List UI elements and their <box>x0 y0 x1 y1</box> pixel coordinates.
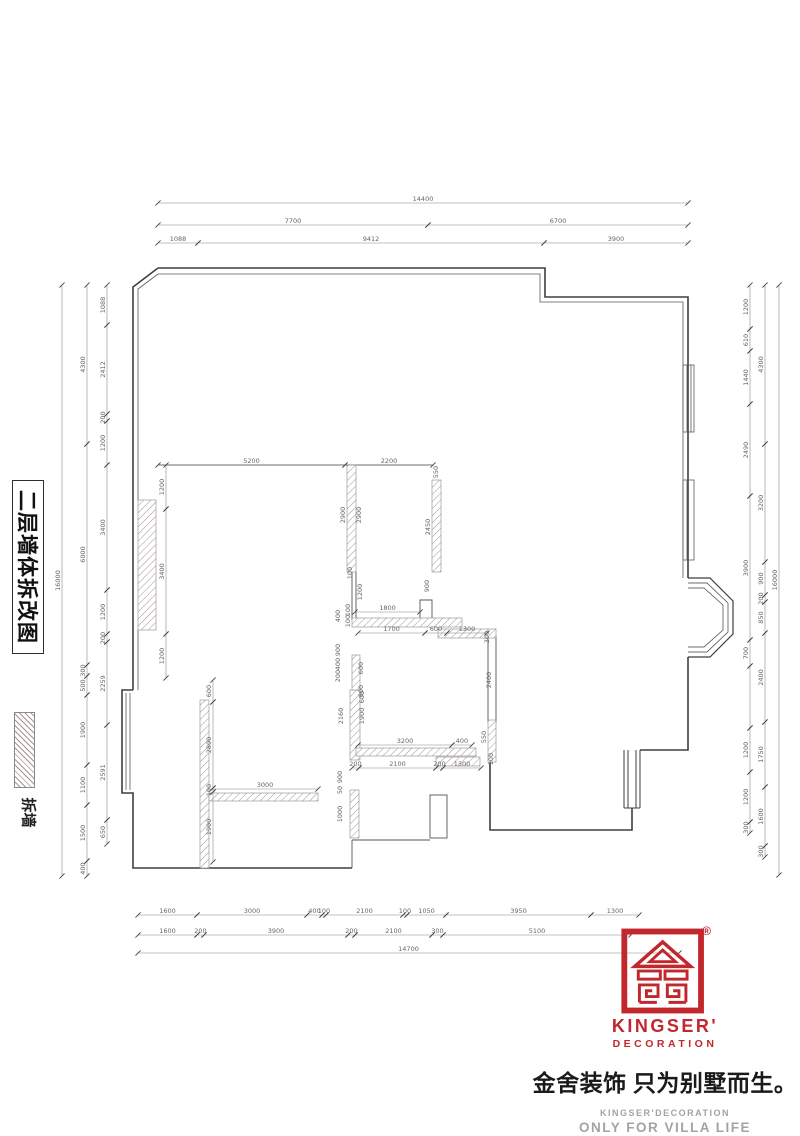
svg-text:900: 900 <box>336 771 344 783</box>
svg-text:1440: 1440 <box>742 369 750 386</box>
svg-text:6700: 6700 <box>550 217 567 225</box>
svg-text:550: 550 <box>480 731 488 743</box>
brand-subname: DECORATION <box>613 1038 718 1050</box>
svg-text:14400: 14400 <box>413 195 434 203</box>
drawing-sheet: 1440077006700108894123900160030004001002… <box>0 0 800 1131</box>
svg-text:600: 600 <box>357 662 365 674</box>
svg-text:550: 550 <box>432 466 440 478</box>
registered-mark: ® <box>702 924 711 938</box>
svg-text:3900: 3900 <box>742 560 750 577</box>
svg-text:400: 400 <box>334 610 342 622</box>
wall-inner-lines <box>126 274 683 790</box>
kingser-logo-mark: ® <box>617 928 713 1014</box>
svg-text:2100: 2100 <box>389 760 406 768</box>
svg-text:2900: 2900 <box>339 507 347 524</box>
svg-text:300: 300 <box>742 821 750 833</box>
svg-text:4300: 4300 <box>757 356 765 373</box>
svg-text:200: 200 <box>99 632 107 644</box>
svg-text:2400: 2400 <box>485 672 493 689</box>
demolish-wall-swatch <box>14 712 35 788</box>
svg-text:2259: 2259 <box>99 675 107 692</box>
svg-text:300: 300 <box>757 845 765 857</box>
svg-text:600: 600 <box>430 625 442 633</box>
svg-text:4300: 4300 <box>79 356 87 373</box>
legend: 拆墙 <box>12 712 46 852</box>
svg-text:2591: 2591 <box>99 764 107 781</box>
svg-text:300: 300 <box>79 664 87 676</box>
drawing-title-box: 二层墙体拆改图 <box>12 480 44 654</box>
svg-text:1750: 1750 <box>757 746 765 763</box>
door-opening-bottom-right <box>624 750 640 808</box>
svg-text:1300: 1300 <box>607 907 624 915</box>
svg-text:1600: 1600 <box>757 808 765 825</box>
svg-text:900: 900 <box>423 580 431 592</box>
svg-text:14700: 14700 <box>398 945 419 953</box>
svg-text:1200: 1200 <box>158 648 166 665</box>
svg-text:1600: 1600 <box>159 927 176 935</box>
svg-text:1088: 1088 <box>170 235 187 243</box>
svg-text:400: 400 <box>79 862 87 874</box>
svg-text:1200: 1200 <box>742 742 750 759</box>
svg-text:50: 50 <box>336 786 344 794</box>
bay-window-right <box>688 578 733 657</box>
svg-text:1300: 1300 <box>459 625 476 633</box>
svg-text:400: 400 <box>456 737 468 745</box>
svg-text:2800: 2800 <box>205 737 213 754</box>
svg-text:1500: 1500 <box>79 825 87 842</box>
svg-text:100: 100 <box>205 784 213 796</box>
svg-text:610: 610 <box>742 334 750 346</box>
svg-text:16000: 16000 <box>771 570 779 591</box>
svg-text:1900: 1900 <box>79 722 87 739</box>
svg-text:1200: 1200 <box>158 479 166 496</box>
brand-en-line2: ONLY FOR VILLA LIFE <box>579 1120 751 1135</box>
svg-text:2900: 2900 <box>355 507 363 524</box>
svg-text:2400: 2400 <box>757 669 765 686</box>
svg-text:3900: 3900 <box>608 235 625 243</box>
svg-text:2450: 2450 <box>424 519 432 536</box>
svg-text:1700: 1700 <box>383 625 400 633</box>
svg-text:100: 100 <box>399 907 411 915</box>
svg-text:1000: 1000 <box>336 806 344 823</box>
svg-text:3200: 3200 <box>757 495 765 512</box>
svg-text:6000: 6000 <box>79 546 87 563</box>
brand-tagline-cn: 金舍装饰 只为别墅而生。 <box>533 1064 798 1098</box>
svg-text:500: 500 <box>79 679 87 691</box>
svg-text:100: 100 <box>487 753 495 765</box>
svg-text:5200: 5200 <box>243 457 260 465</box>
svg-text:1200: 1200 <box>356 584 364 601</box>
svg-text:1200: 1200 <box>99 604 107 621</box>
svg-text:1088: 1088 <box>99 297 107 314</box>
svg-text:2412: 2412 <box>99 361 107 378</box>
svg-text:300: 300 <box>431 927 443 935</box>
svg-text:200: 200 <box>334 670 342 682</box>
svg-text:2160: 2160 <box>337 708 345 725</box>
svg-text:1900: 1900 <box>358 708 366 725</box>
svg-text:1300: 1300 <box>454 760 471 768</box>
svg-text:1200: 1200 <box>742 299 750 316</box>
kingser-logo-icon <box>617 928 713 1014</box>
svg-text:100: 100 <box>344 604 352 616</box>
logo-block: ® KINGSER' DECORATION 金舍装饰 只为别墅而生。 KINGS… <box>540 928 790 1118</box>
svg-text:650: 650 <box>99 826 107 838</box>
svg-text:600: 600 <box>358 691 366 703</box>
drawing-title: 二层墙体拆改图 <box>13 490 43 644</box>
svg-text:1050: 1050 <box>418 907 435 915</box>
svg-text:2200: 2200 <box>381 457 398 465</box>
svg-text:3400: 3400 <box>158 563 166 580</box>
svg-text:1800: 1800 <box>379 604 396 612</box>
svg-text:2100: 2100 <box>356 907 373 915</box>
legend-label: 拆墙 <box>19 797 40 827</box>
svg-text:1100: 1100 <box>79 777 87 794</box>
svg-text:3000: 3000 <box>244 907 261 915</box>
svg-text:3400: 3400 <box>99 519 107 536</box>
svg-text:400: 400 <box>334 658 342 670</box>
svg-text:16000: 16000 <box>54 570 62 591</box>
svg-text:1600: 1600 <box>159 907 176 915</box>
svg-text:100: 100 <box>346 567 354 579</box>
svg-text:2100: 2100 <box>385 927 402 935</box>
svg-text:9412: 9412 <box>363 235 380 243</box>
brand-name: KINGSER' <box>612 1016 718 1037</box>
svg-text:100: 100 <box>318 907 330 915</box>
svg-text:900: 900 <box>334 644 342 656</box>
svg-text:7700: 7700 <box>285 217 302 225</box>
svg-text:600: 600 <box>205 685 213 697</box>
brand-en-line1: KINGSER'DECORATION <box>600 1108 730 1118</box>
svg-text:1200: 1200 <box>742 789 750 806</box>
svg-text:3200: 3200 <box>397 737 414 745</box>
svg-text:1200: 1200 <box>99 435 107 452</box>
svg-text:300: 300 <box>483 631 491 643</box>
svg-text:1900: 1900 <box>205 819 213 836</box>
svg-text:850: 850 <box>757 611 765 623</box>
demolition-walls <box>138 465 496 868</box>
dimension-annotations: 1440077006700108894123900160030004001002… <box>54 195 782 956</box>
svg-text:3000: 3000 <box>257 781 274 789</box>
svg-text:3950: 3950 <box>510 907 527 915</box>
svg-text:3900: 3900 <box>268 927 285 935</box>
svg-text:700: 700 <box>742 647 750 659</box>
svg-text:2490: 2490 <box>742 442 750 459</box>
svg-text:900: 900 <box>757 572 765 584</box>
svg-text:100: 100 <box>344 615 352 627</box>
